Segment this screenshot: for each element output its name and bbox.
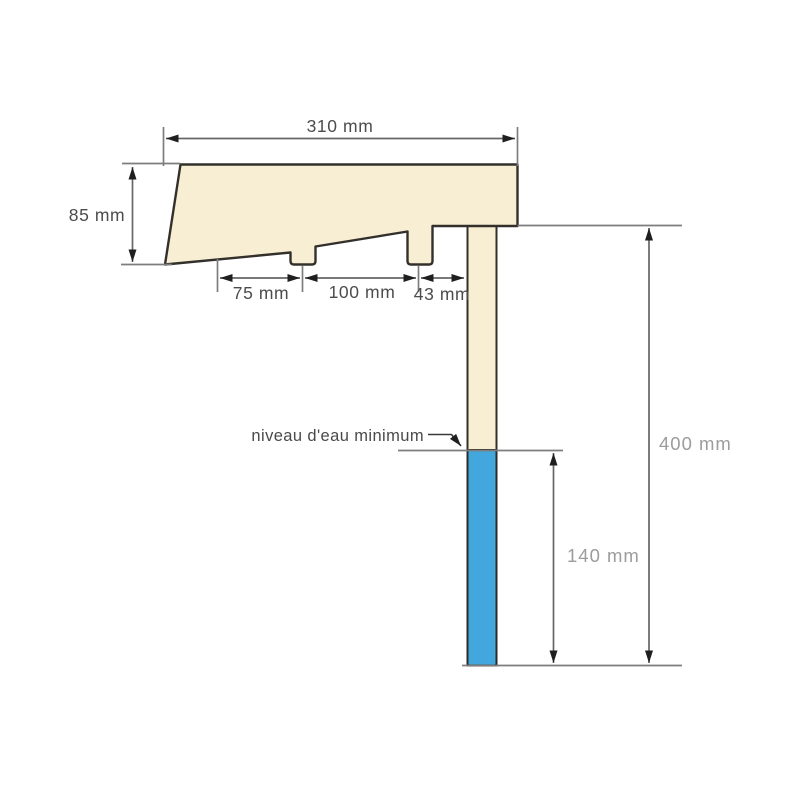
dimension-label-75: 75 mm	[233, 283, 289, 303]
dimension-label-85: 85 mm	[69, 205, 125, 225]
dimension-label-140: 140 mm	[567, 545, 640, 566]
dimension-label-100: 100 mm	[329, 282, 396, 302]
pool-water	[468, 450, 497, 666]
water-level-leader-line	[428, 435, 461, 447]
dimension-label-400: 400 mm	[659, 433, 732, 454]
coping-cross-section-diagram: 310 mm 85 mm 75 mm 100 mm 43 mm 400 mm 1…	[0, 0, 800, 800]
technical-diagram-page: 310 mm 85 mm 75 mm 100 mm 43 mm 400 mm 1…	[0, 0, 800, 800]
water-level-label: niveau d'eau minimum	[251, 427, 424, 445]
coping-profile	[165, 165, 518, 265]
dimension-label-43: 43 mm	[414, 284, 470, 304]
dimension-label-310: 310 mm	[307, 116, 374, 136]
